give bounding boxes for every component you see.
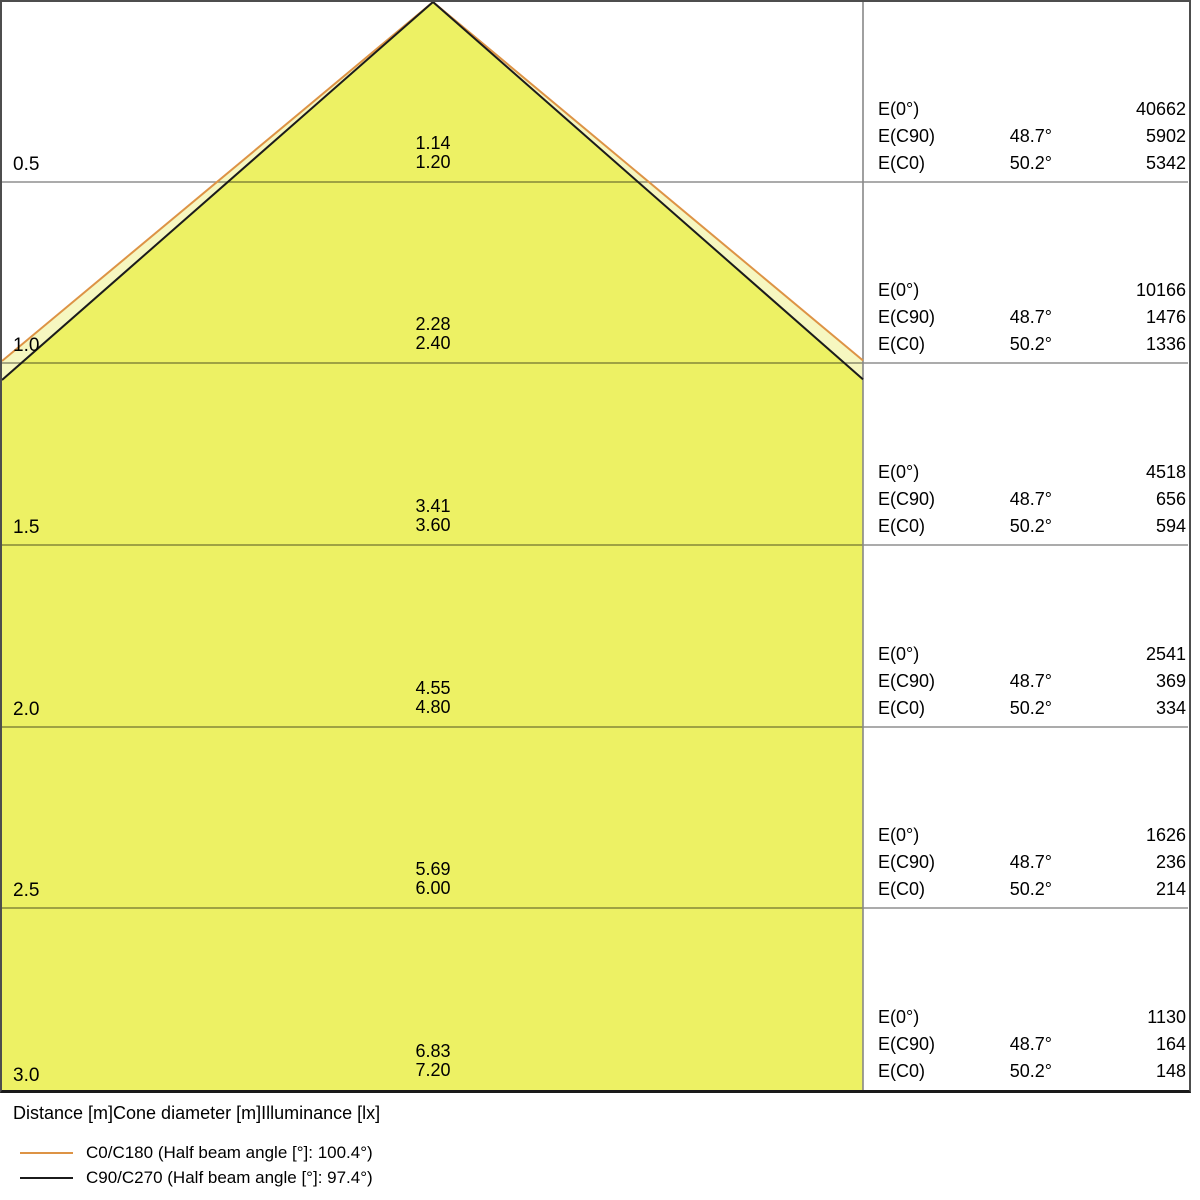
table-row: E(C0)50.2°214	[863, 876, 1188, 903]
table-row: E(C90)48.7°164	[863, 1031, 1188, 1058]
cone-diameter-label: 6.83 7.20	[415, 1042, 450, 1079]
table-row: E(0°)1626	[863, 822, 1188, 849]
illuminance-block: E(0°)2541 E(C90)48.7°369 E(C0)50.2°334	[863, 641, 1188, 722]
illuminance-block: E(0°)40662 E(C90)48.7°5902 E(C0)50.2°534…	[863, 96, 1188, 177]
table-row: E(C0)50.2°334	[863, 695, 1188, 722]
distance-label: 2.0	[13, 700, 39, 719]
c90-line-swatch	[20, 1177, 73, 1179]
cone-diameter-label: 4.55 4.80	[415, 679, 450, 716]
c0-line-swatch	[20, 1152, 73, 1154]
table-row: E(C0)50.2°5342	[863, 150, 1188, 177]
illuminance-block: E(0°)10166 E(C90)48.7°1476 E(C0)50.2°133…	[863, 277, 1188, 358]
illuminance-block: E(0°)1130 E(C90)48.7°164 E(C0)50.2°148	[863, 1004, 1188, 1085]
table-row: E(C0)50.2°1336	[863, 331, 1188, 358]
table-row: E(C90)48.7°656	[863, 486, 1188, 513]
table-row: E(C90)48.7°369	[863, 668, 1188, 695]
table-row: E(0°)2541	[863, 641, 1188, 668]
cone-diameter-label: 3.41 3.60	[415, 497, 450, 534]
table-row: E(0°)4518	[863, 459, 1188, 486]
legend-label: C0/C180 (Half beam angle [°]: 100.4°)	[86, 1143, 373, 1163]
legend-item-c90: C90/C270 (Half beam angle [°]: 97.4°)	[20, 1165, 373, 1190]
table-row: E(0°)40662	[863, 96, 1188, 123]
distance-label: 2.5	[13, 881, 39, 900]
table-row: E(0°)10166	[863, 277, 1188, 304]
table-row: E(C0)50.2°594	[863, 513, 1188, 540]
legend-item-c0: C0/C180 (Half beam angle [°]: 100.4°)	[20, 1140, 373, 1165]
axes-caption: Distance [m]Cone diameter [m]Illuminance…	[13, 1103, 380, 1124]
distance-label: 1.5	[13, 518, 39, 537]
table-row: E(C90)48.7°5902	[863, 123, 1188, 150]
cone-diameter-label: 2.28 2.40	[415, 315, 450, 352]
cone-diameter-label: 1.14 1.20	[415, 134, 450, 171]
cone-diameter-label: 5.69 6.00	[415, 860, 450, 897]
distance-label: 0.5	[13, 155, 39, 174]
table-row: E(C90)48.7°236	[863, 849, 1188, 876]
distance-label: 1.0	[13, 336, 39, 355]
legend-label: C90/C270 (Half beam angle [°]: 97.4°)	[86, 1168, 373, 1188]
illuminance-block: E(0°)1626 E(C90)48.7°236 E(C0)50.2°214	[863, 822, 1188, 903]
table-row: E(0°)1130	[863, 1004, 1188, 1031]
light-cone-diagram: 0.5 1.0 1.5 2.0 2.5 3.0 1.14 1.20 2.28 2…	[0, 0, 1191, 1093]
table-row: E(C90)48.7°1476	[863, 304, 1188, 331]
distance-label: 3.0	[13, 1066, 39, 1085]
legend: C0/C180 (Half beam angle [°]: 100.4°) C9…	[20, 1140, 373, 1190]
table-row: E(C0)50.2°148	[863, 1058, 1188, 1085]
illuminance-block: E(0°)4518 E(C90)48.7°656 E(C0)50.2°594	[863, 459, 1188, 540]
